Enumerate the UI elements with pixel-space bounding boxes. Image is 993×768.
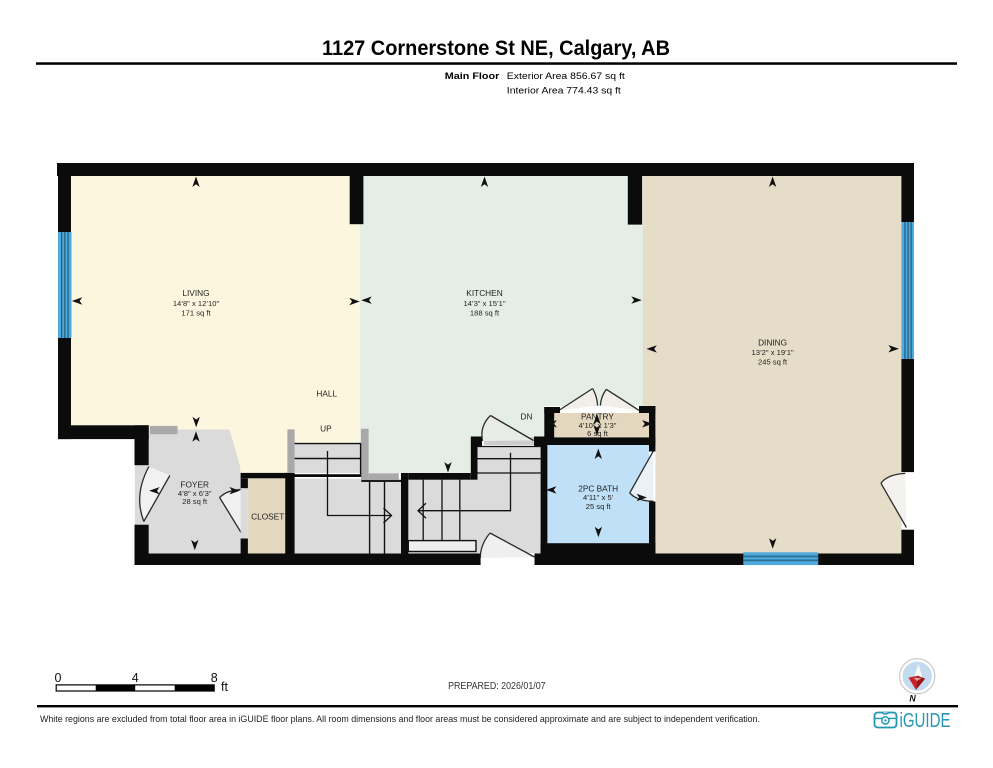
svg-text:CLOSET: CLOSET — [251, 512, 284, 522]
svg-text:0: 0 — [55, 671, 62, 685]
svg-text:White regions are excluded fro: White regions are excluded from total fl… — [40, 714, 760, 724]
svg-text:ft: ft — [221, 680, 228, 694]
svg-text:14’8" x 12’10": 14’8" x 12’10" — [173, 299, 220, 308]
svg-text:13’2" x 19’1": 13’2" x 19’1" — [752, 348, 794, 357]
svg-text:28 sq ft: 28 sq ft — [182, 497, 208, 506]
svg-text:4’11" x 5’: 4’11" x 5’ — [583, 493, 614, 502]
svg-text:8: 8 — [211, 671, 218, 685]
svg-text:HALL: HALL — [316, 388, 337, 398]
svg-text:171 sq ft: 171 sq ft — [181, 308, 211, 317]
svg-text:14’3" x 15’1": 14’3" x 15’1" — [463, 299, 505, 308]
svg-text:245 sq ft: 245 sq ft — [758, 357, 788, 366]
svg-text:Exterior Area 856.67 sq ft: Exterior Area 856.67 sq ft — [507, 71, 625, 82]
svg-text:iGUIDE: iGUIDE — [900, 710, 951, 732]
svg-text:Interior Area 774.43 sq ft: Interior Area 774.43 sq ft — [507, 86, 621, 97]
svg-text:Main Floor: Main Floor — [445, 71, 500, 82]
svg-text:2PC BATH: 2PC BATH — [578, 483, 618, 493]
svg-text:FOYER: FOYER — [180, 479, 209, 489]
svg-text:188 sq ft: 188 sq ft — [470, 308, 500, 317]
svg-text:25 sq ft: 25 sq ft — [586, 502, 612, 511]
svg-text:4: 4 — [132, 671, 139, 685]
svg-text:KITCHEN: KITCHEN — [466, 288, 502, 298]
svg-text:1127 Cornerstone St NE, Calgar: 1127 Cornerstone St NE, Calgary, AB — [322, 37, 670, 60]
svg-text:DINING: DINING — [758, 338, 787, 348]
svg-text:N: N — [909, 694, 916, 704]
svg-text:DN: DN — [521, 412, 533, 422]
svg-text:LIVING: LIVING — [182, 288, 209, 298]
svg-text:UP: UP — [320, 423, 332, 433]
svg-text:PREPARED: 2026/01/07: PREPARED: 2026/01/07 — [448, 680, 546, 692]
